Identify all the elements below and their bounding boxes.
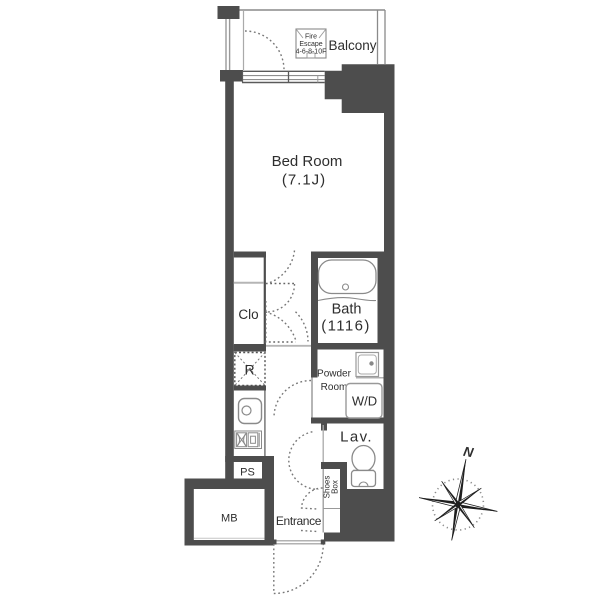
svg-text:Escape: Escape	[299, 41, 322, 48]
svg-text:Fire: Fire	[305, 34, 317, 41]
svg-text:Clo: Clo	[238, 307, 258, 322]
svg-text:Bed Room: Bed Room	[272, 153, 343, 170]
svg-text:MB: MB	[221, 513, 238, 525]
svg-text:(7.1J): (7.1J)	[282, 172, 326, 189]
svg-text:Entrance: Entrance	[276, 514, 322, 528]
svg-text:Balcony: Balcony	[328, 38, 376, 53]
svg-text:(1116): (1116)	[321, 318, 371, 335]
svg-text:4-6-8-10F: 4-6-8-10F	[296, 49, 327, 56]
svg-text:R: R	[244, 362, 254, 378]
svg-text:Bath: Bath	[332, 302, 362, 318]
svg-text:W/D: W/D	[352, 394, 377, 409]
svg-text:Room: Room	[321, 382, 348, 393]
svg-text:PS: PS	[240, 467, 255, 479]
svg-text:Powder: Powder	[317, 369, 352, 380]
svg-text:Lav.: Lav.	[340, 429, 373, 446]
